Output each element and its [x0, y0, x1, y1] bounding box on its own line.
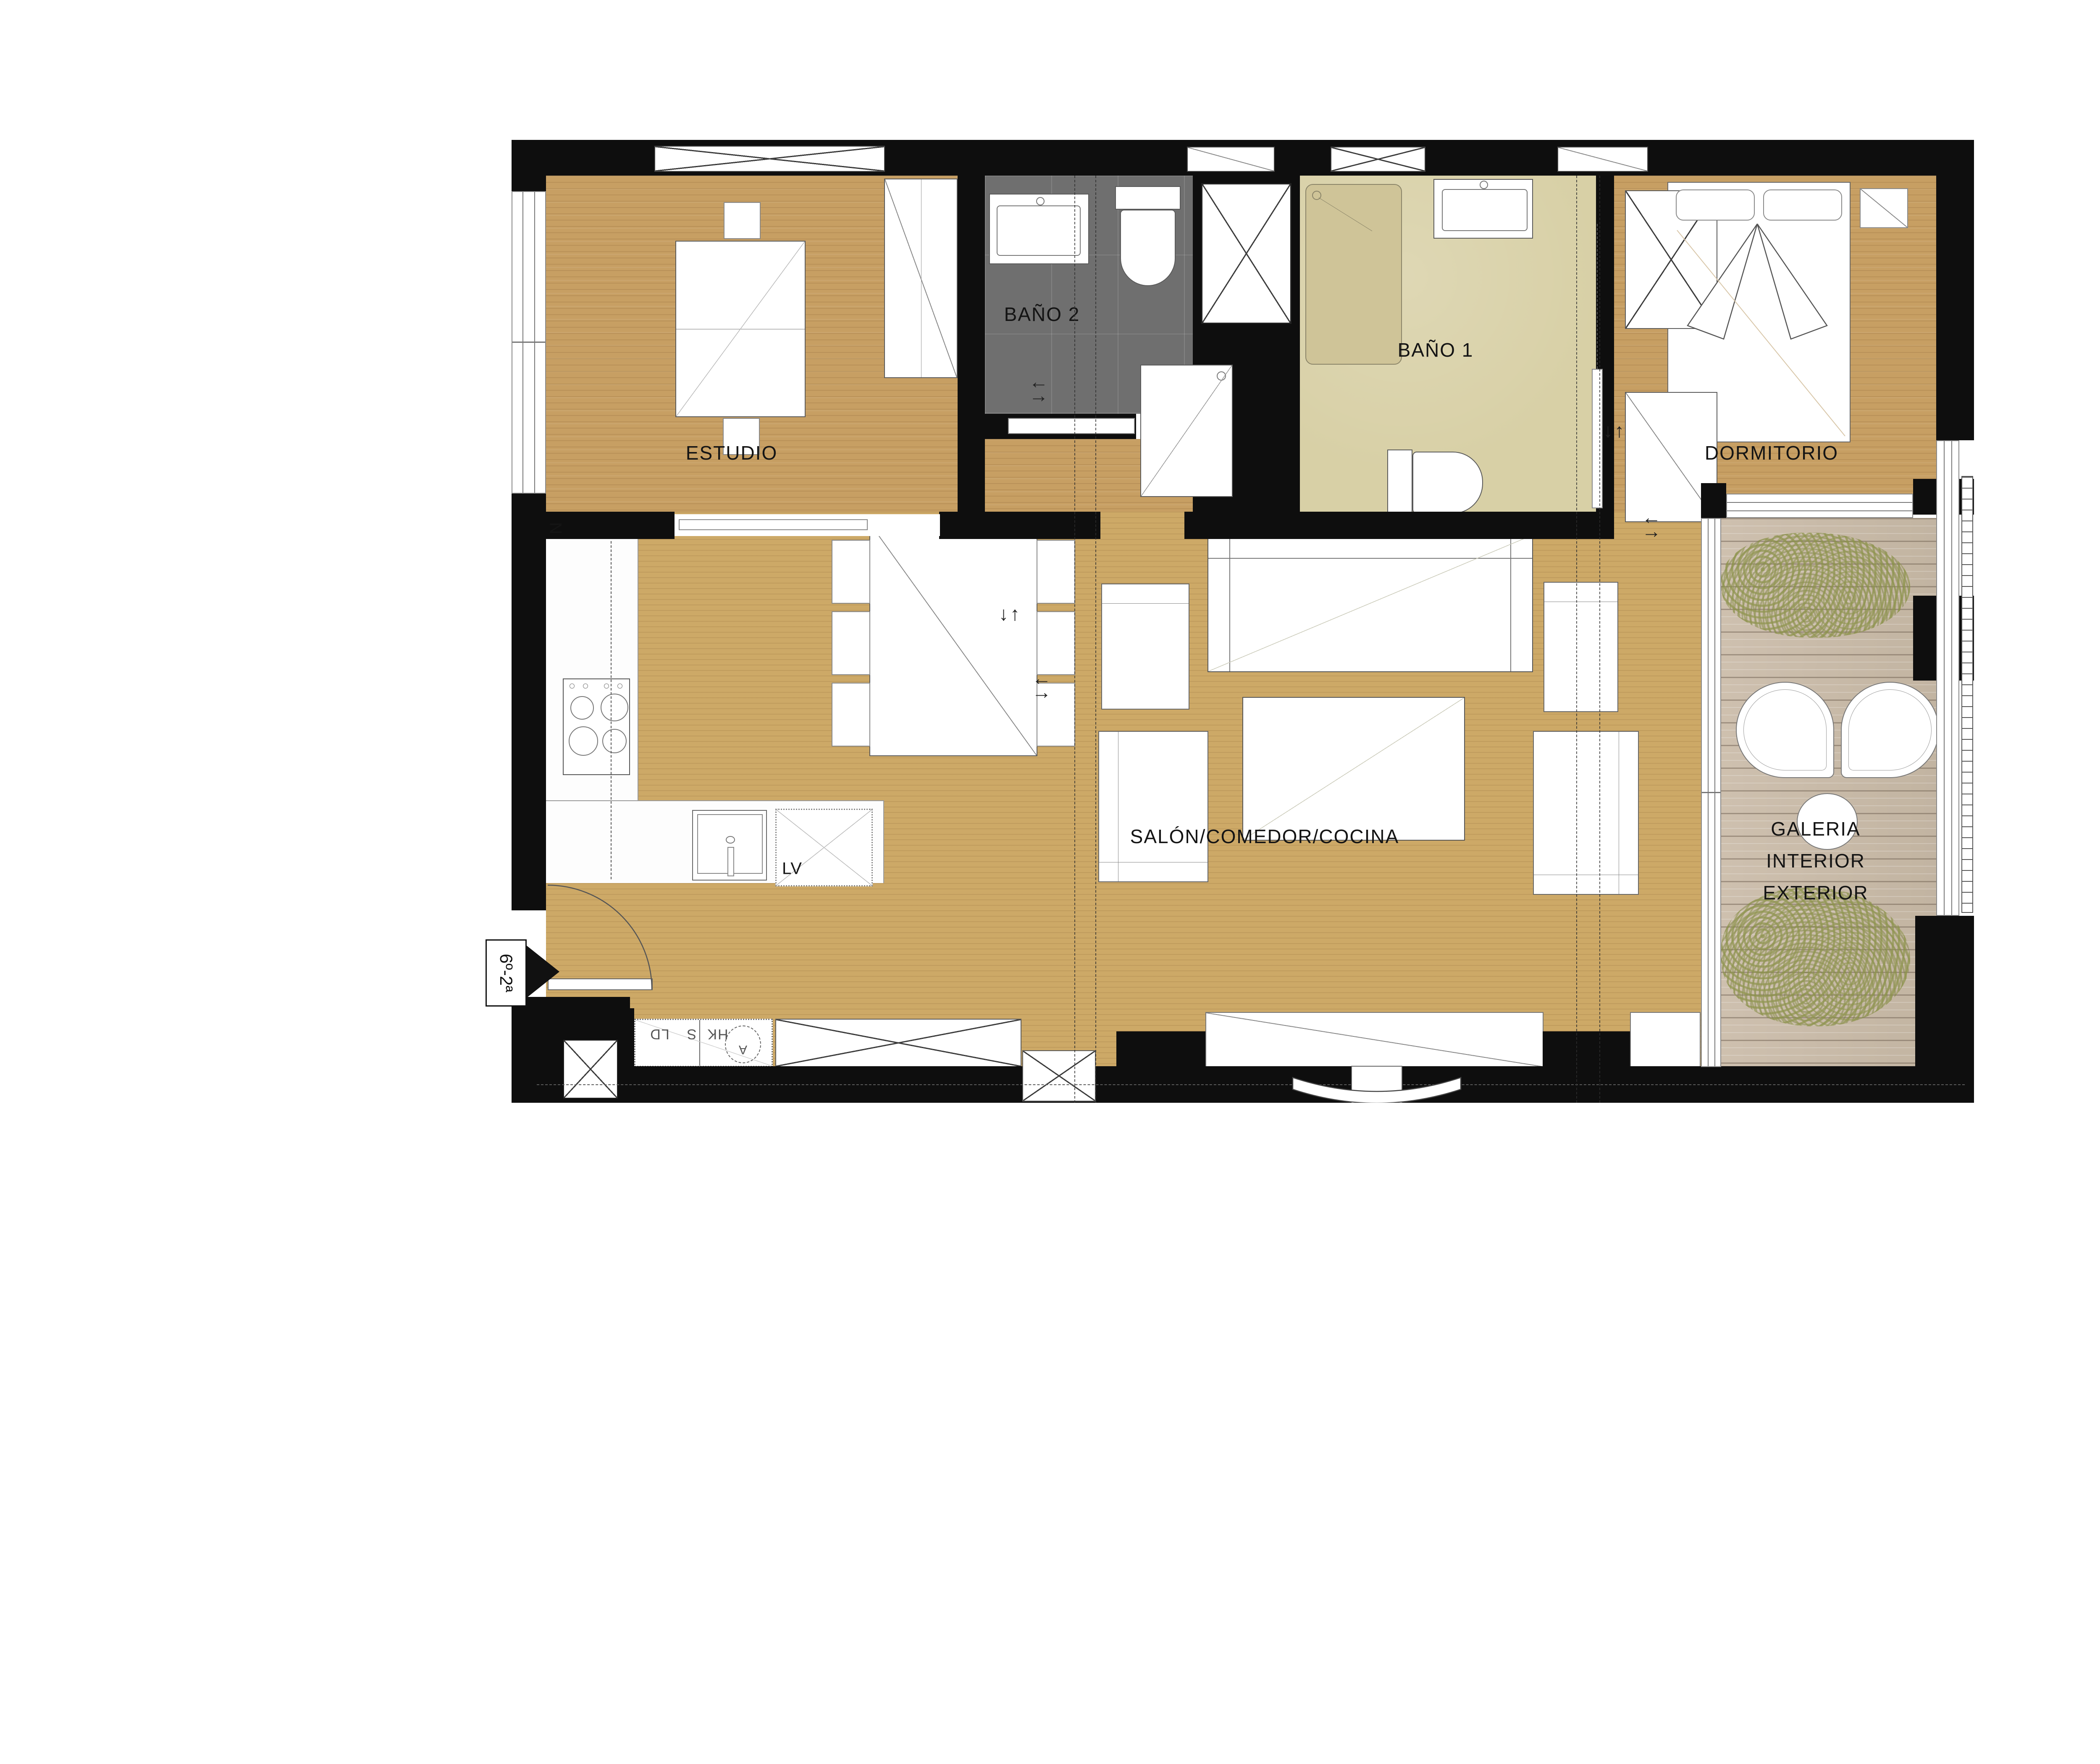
label-salon: SALÓN/COMEDOR/COCINA	[1130, 825, 1399, 848]
wall-corner-ne	[1936, 140, 1974, 440]
dining-table	[869, 523, 1037, 756]
kitchen-note: N	[549, 519, 562, 538]
wall-left-mid	[512, 494, 546, 910]
shaft-sw	[563, 1040, 618, 1099]
section-line-b1	[1576, 176, 1577, 1103]
coffee-table	[1242, 697, 1465, 841]
armchair-left-lower	[1098, 731, 1208, 882]
desk	[675, 241, 806, 417]
wardrobe-bottom	[775, 1019, 1021, 1067]
window-galeria-salon	[1701, 518, 1721, 1067]
wall-galeria-nw-block	[1701, 483, 1726, 518]
dishwasher-label: LV	[782, 860, 802, 878]
kitchen-sink	[692, 810, 767, 881]
entrance-sign-text: 6º-2ª	[496, 954, 516, 992]
label-galeria-3: EXTERIOR	[1763, 881, 1868, 904]
topwall-vent-d	[1557, 147, 1648, 172]
arrow-bano2-door: ←→	[1029, 375, 1048, 402]
facade-dashed-line	[537, 1084, 1965, 1085]
stove	[563, 678, 630, 775]
closet-small	[1022, 1050, 1096, 1102]
arrow-estudio-door: ↓↑	[999, 607, 1020, 620]
utility-label-ld: LD	[649, 1026, 669, 1042]
wall-mid-c	[1184, 512, 1614, 539]
tv-sideboard	[1205, 1012, 1543, 1067]
arrow-dormitorio-door: ←→	[1642, 510, 1661, 538]
shutter-rail	[1961, 476, 1973, 913]
window-galeria-right	[1936, 440, 1959, 916]
entrance-door-leaf	[548, 978, 653, 990]
topwall-vent-b	[1187, 147, 1275, 172]
toilet-bano1-bowl	[1412, 452, 1483, 514]
armchair-left-upper	[1101, 584, 1189, 710]
label-galeria-1: GALERIA	[1771, 818, 1860, 840]
label-galeria-2: INTERIOR	[1766, 849, 1865, 872]
wardrobe-estudio	[884, 179, 958, 378]
sofa	[1207, 534, 1533, 672]
wall-mid-a	[546, 512, 675, 539]
dining-chair-r2	[1037, 611, 1075, 675]
section-line-a1	[1074, 176, 1075, 1103]
window-dormitorio-galeria	[1726, 494, 1913, 518]
dining-chair-l3	[832, 683, 870, 747]
shower-tray-bano2	[1140, 365, 1233, 497]
wall-left-upper	[512, 140, 546, 191]
armchair-right-lower	[1533, 731, 1639, 895]
toilet-bano2-bowl	[1120, 210, 1176, 286]
toilet-bano1-tank	[1387, 450, 1412, 516]
section-line-b2	[1599, 176, 1600, 1103]
armchair-right-upper	[1543, 582, 1618, 712]
toilet-bano2-tank	[1115, 186, 1181, 210]
wall-estudio-bano2	[958, 176, 985, 512]
door-track-bano1	[1597, 224, 1598, 369]
arrow-bano1-door: ↓↑	[1603, 423, 1624, 437]
dining-chair-l2	[832, 611, 870, 675]
utility-label-hk: HK	[706, 1026, 728, 1042]
floorplan-page: { "plan": { "rooms": { "estudio": "ESTUD…	[0, 0, 2100, 1764]
kitchen-centerline	[611, 541, 612, 879]
arrow-hall: ←→	[1032, 671, 1051, 699]
nightstand	[1860, 188, 1908, 228]
window-estudio-left	[512, 191, 546, 494]
wall-corner-se	[1915, 916, 1974, 1103]
entrance-sign: 6º-2ª	[486, 939, 527, 1007]
sliding-door-bano2	[1008, 418, 1135, 434]
wall-mid-b	[939, 512, 1100, 539]
lounge-chair-left	[1736, 682, 1834, 778]
desk-chair-top	[724, 202, 761, 239]
pillar-bottom-a	[1116, 1031, 1205, 1083]
label-bano1: BAÑO 1	[1398, 339, 1474, 361]
dining-chair-r1	[1037, 540, 1075, 604]
dining-chair-l1	[832, 540, 870, 604]
label-bano2: BAÑO 2	[1004, 303, 1080, 326]
pillow-left	[1676, 189, 1755, 221]
shaft-box	[1201, 183, 1291, 324]
apartment-floorplan: ←→ ↓↑ ←→ ↓↑ ←→	[512, 140, 1974, 1103]
topwall-vent-c	[1331, 147, 1425, 172]
pillar-bottom-b	[1543, 1031, 1630, 1083]
pillow-right	[1763, 189, 1842, 221]
sideboard-right	[1630, 1012, 1701, 1067]
topwall-vent-a	[654, 146, 885, 172]
entrance-sign-arrow	[527, 946, 559, 998]
label-dormitorio: DORMITORIO	[1705, 442, 1838, 464]
shower-tray-bano1	[1305, 184, 1402, 365]
sink-bano1	[1433, 179, 1533, 239]
section-line-a2	[1095, 176, 1096, 1103]
vent-circle-label: A	[738, 1042, 747, 1057]
pocket-door-estudio	[675, 514, 940, 536]
sliding-door-bano1	[1592, 369, 1603, 508]
label-estudio: ESTUDIO	[686, 442, 777, 464]
utility-label-s: S	[686, 1026, 697, 1042]
lounge-chair-right	[1841, 682, 1939, 778]
